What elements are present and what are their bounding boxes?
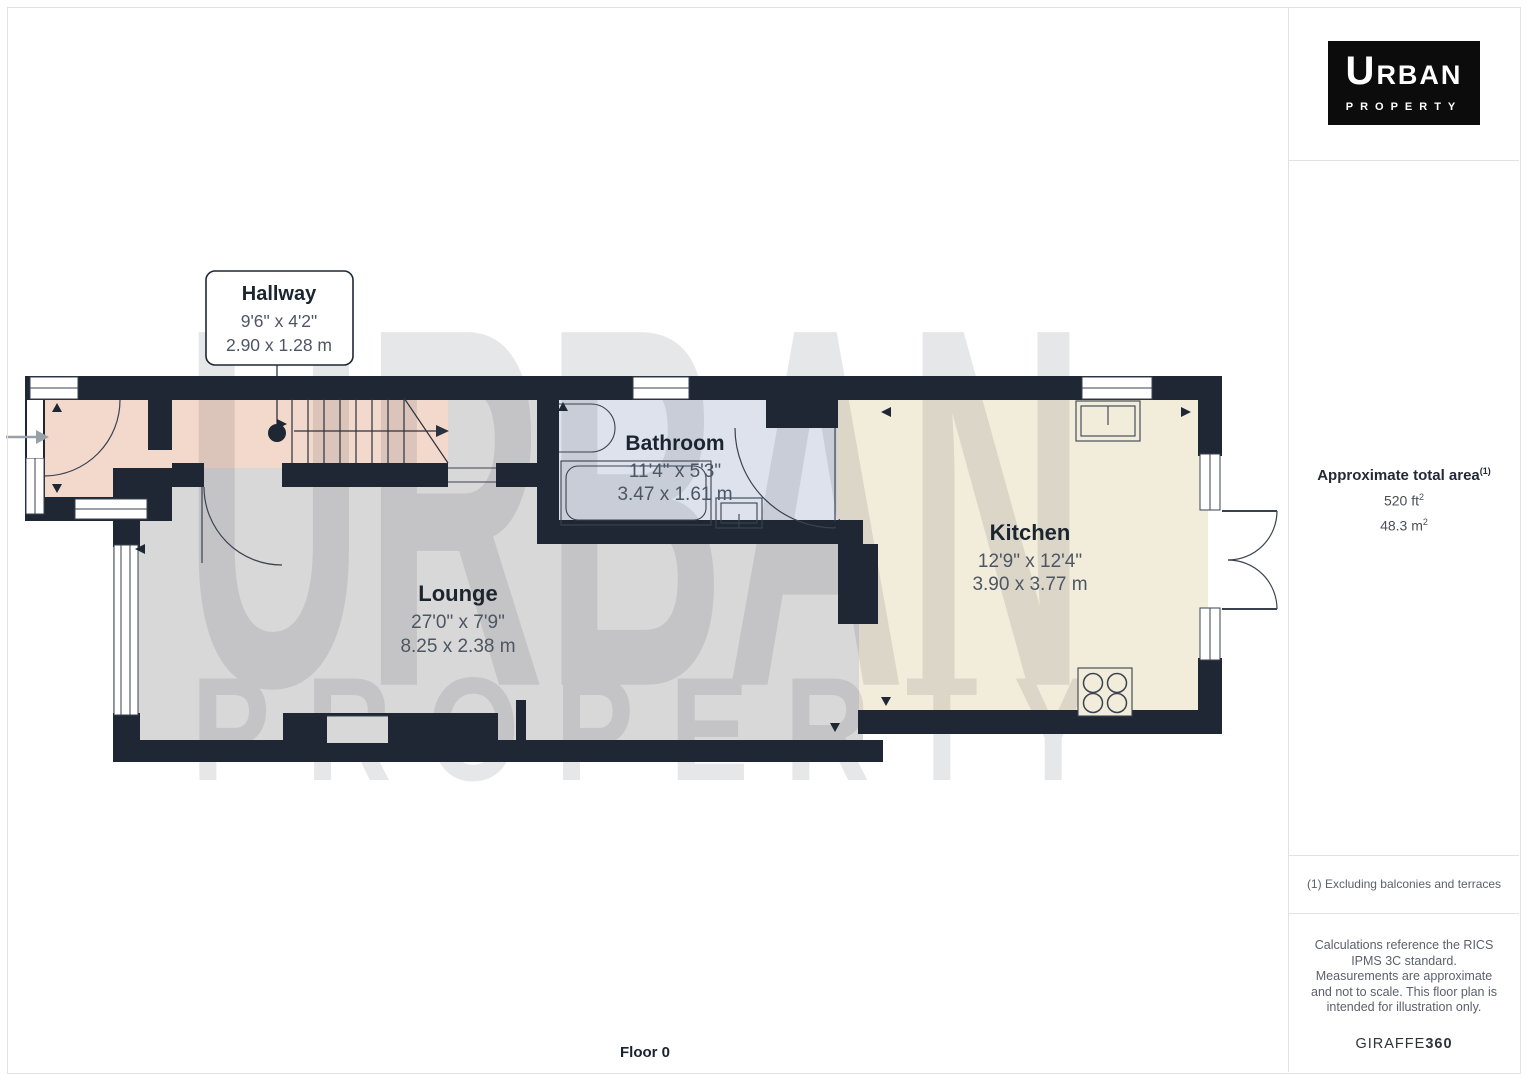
french-doors-kitchen <box>1222 511 1277 609</box>
window-top-entrance <box>30 377 78 399</box>
logo-property: PROPERTY <box>1328 101 1480 113</box>
hallway-name: Hallway <box>242 283 317 305</box>
sidebar: URBAN PROPERTY Approximate total area(1)… <box>1289 8 1519 1072</box>
bathroom-metric: 3.47 x 1.61 m <box>617 484 732 505</box>
window-entrance-left <box>26 458 44 514</box>
footnote-exclusions: (1) Excluding balconies and terraces <box>1299 877 1509 891</box>
area-summary: Approximate total area(1) 520 ft2 48.3 m… <box>1289 466 1519 533</box>
floor-label: Floor 0 <box>0 1044 1290 1061</box>
disclaimer-text: Calculations reference the RICS IPMS 3C … <box>1311 938 1497 1016</box>
window-lounge-left <box>114 545 138 715</box>
sidebar-rule-mid <box>1289 855 1519 856</box>
area-sqm: 48.3 m2 <box>1289 517 1519 534</box>
window-kitchen-right-upper <box>1200 454 1220 510</box>
stove <box>1078 668 1132 716</box>
bathroom-name: Bathroom <box>625 432 724 455</box>
chimney-alcove <box>327 716 388 743</box>
hallway-metric: 2.90 x 1.28 m <box>226 335 332 355</box>
area-title: Approximate total area(1) <box>1289 466 1519 484</box>
floorplan: URBAN PROPERTY <box>0 0 1290 1080</box>
sidebar-rule-top <box>1289 160 1519 161</box>
lounge-metric: 8.25 x 2.38 m <box>400 636 515 657</box>
area-sqft: 520 ft2 <box>1289 492 1519 509</box>
kitchen-metric: 3.90 x 3.77 m <box>972 574 1087 595</box>
area-footnote-marker: (1) <box>1480 466 1491 476</box>
logo-urban: URBAN <box>1328 53 1480 98</box>
window-vestibule-bottom <box>75 499 147 519</box>
lounge-imperial: 27'0" x 7'9" <box>411 612 505 633</box>
window-top-kitchen <box>1082 377 1152 399</box>
floorplan-svg: URBAN PROPERTY <box>0 0 1290 1080</box>
kitchen-name: Kitchen <box>990 520 1071 545</box>
window-top-bathroom <box>633 377 689 399</box>
hallway-imperial: 9'6" x 4'2" <box>241 311 318 331</box>
window-kitchen-right-lower <box>1200 608 1220 660</box>
sidebar-rule-bottom <box>1289 913 1519 914</box>
lounge-name: Lounge <box>418 581 497 606</box>
bathroom-imperial: 11'4" x 5'3" <box>629 461 721 482</box>
kitchen-imperial: 12'9" x 12'4" <box>978 551 1082 572</box>
giraffe360-brand: GIRAFFE360 <box>1289 1036 1519 1052</box>
urban-property-logo: URBAN PROPERTY <box>1328 41 1480 125</box>
